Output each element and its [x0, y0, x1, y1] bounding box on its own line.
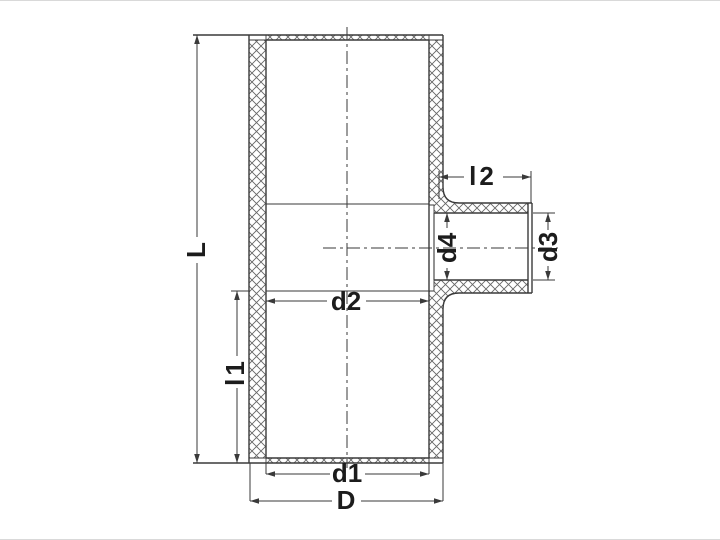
dim-label-l2: l2 [469, 161, 497, 191]
dim-d2-arrow-left [266, 298, 275, 304]
left-wall-hatch [249, 40, 266, 458]
dim-D-arrow-right [434, 498, 443, 504]
dim-label-d2: d2 [331, 286, 361, 316]
dimension-L: L [181, 35, 211, 463]
dim-label-d3: d3 [533, 232, 563, 262]
dim-label-l1: l1 [220, 358, 250, 386]
dimension-d3: d3 [533, 213, 563, 280]
dimension-l2: l2 [439, 161, 531, 203]
drawing-canvas: L l1 l2 d4 d3 d2 [0, 0, 720, 540]
dim-l2-arrow-right [522, 174, 531, 180]
dim-label-d4: d4 [432, 232, 462, 263]
dim-L-arrow-top [194, 35, 200, 44]
dimension-l1: l1 [220, 291, 250, 463]
dim-L-arrow-bottom [194, 454, 200, 463]
dim-l1-arrow-top [234, 291, 240, 300]
dim-d4-arrow-top [444, 213, 450, 222]
dim-d3-arrow-bottom [545, 271, 551, 280]
dim-d1-arrow-left [266, 471, 275, 477]
dim-d1-arrow-right [420, 471, 429, 477]
main-body-outline [193, 35, 443, 463]
dim-d3-arrow-top [545, 213, 551, 222]
lower-right-wall-and-branch-bottom-hatch [429, 280, 528, 458]
dim-d4-arrow-bottom [444, 271, 450, 280]
dim-label-D: D [337, 485, 356, 515]
hatched-wall-sections [249, 35, 528, 463]
dim-D-arrow-left [250, 498, 259, 504]
dim-label-d1: d1 [332, 458, 362, 488]
dim-label-L: L [181, 242, 211, 258]
dim-d2-arrow-right [420, 298, 429, 304]
dimension-d4: d4 [432, 213, 462, 280]
reducing-tee-section-drawing: L l1 l2 d4 d3 d2 [0, 1, 720, 540]
dim-l1-arrow-bottom [234, 454, 240, 463]
